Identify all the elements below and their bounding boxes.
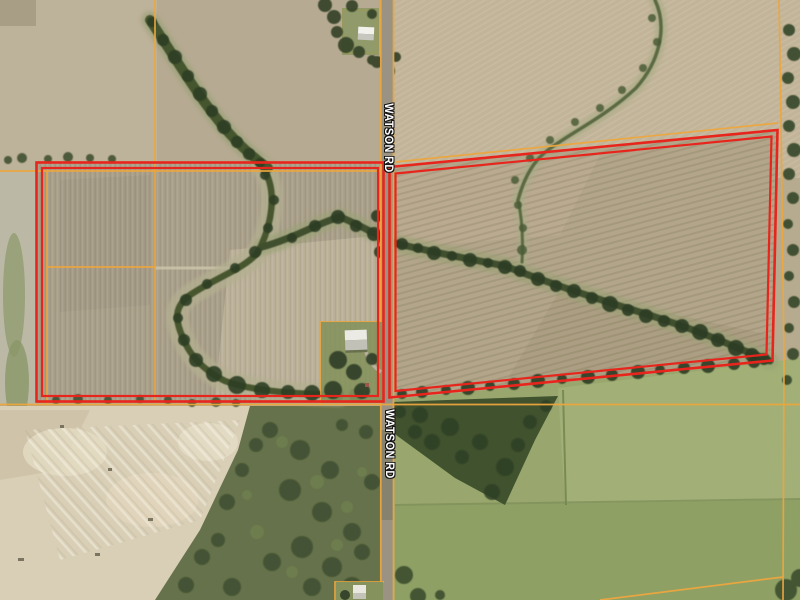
building-north xyxy=(358,27,375,41)
homestead-center xyxy=(321,322,382,403)
aerial-map-graphic xyxy=(0,0,800,600)
building-center xyxy=(345,330,368,353)
map-canvas[interactable]: WATSON RD WATSON RD xyxy=(0,0,800,600)
road-label-watson-rd-north: WATSON RD xyxy=(381,103,393,172)
road-label-text: WATSON RD xyxy=(382,103,394,172)
road-label-text: WATSON RD xyxy=(383,409,395,478)
field-base-layer xyxy=(0,0,800,600)
road-label-watson-rd-south: WATSON RD xyxy=(382,409,394,478)
building-south xyxy=(353,585,366,599)
homestead-south xyxy=(336,582,383,600)
